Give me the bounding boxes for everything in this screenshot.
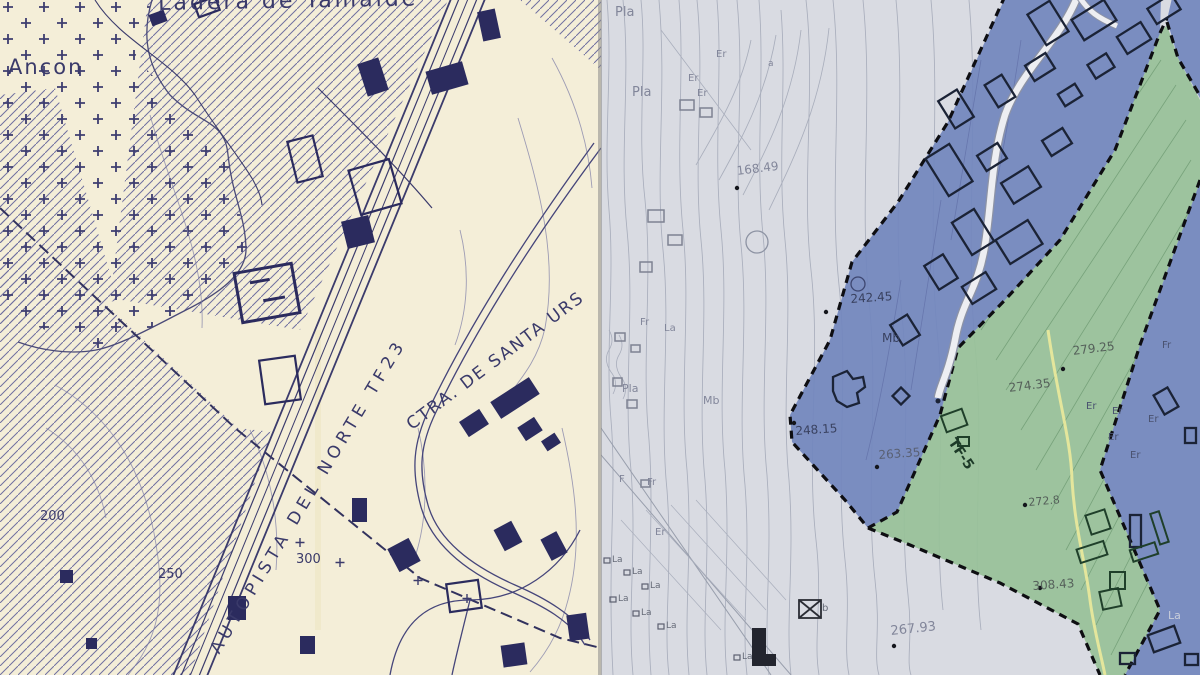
zoning-map-graphics [601, 0, 1200, 675]
fold-crease [315, 330, 321, 630]
map-screenshot: Ladera de TamaideAnconAUTOPISTA DEL NORT… [0, 0, 1200, 675]
zoning-map-panel: PlaPlaErErEra168.49242.45MbMbFrLaPlaFFrE… [601, 0, 1200, 675]
topographic-map-panel: Ladera de TamaideAnconAUTOPISTA DEL NORT… [0, 0, 601, 675]
topographic-map-graphics [0, 0, 601, 675]
scan-seam [598, 0, 602, 675]
